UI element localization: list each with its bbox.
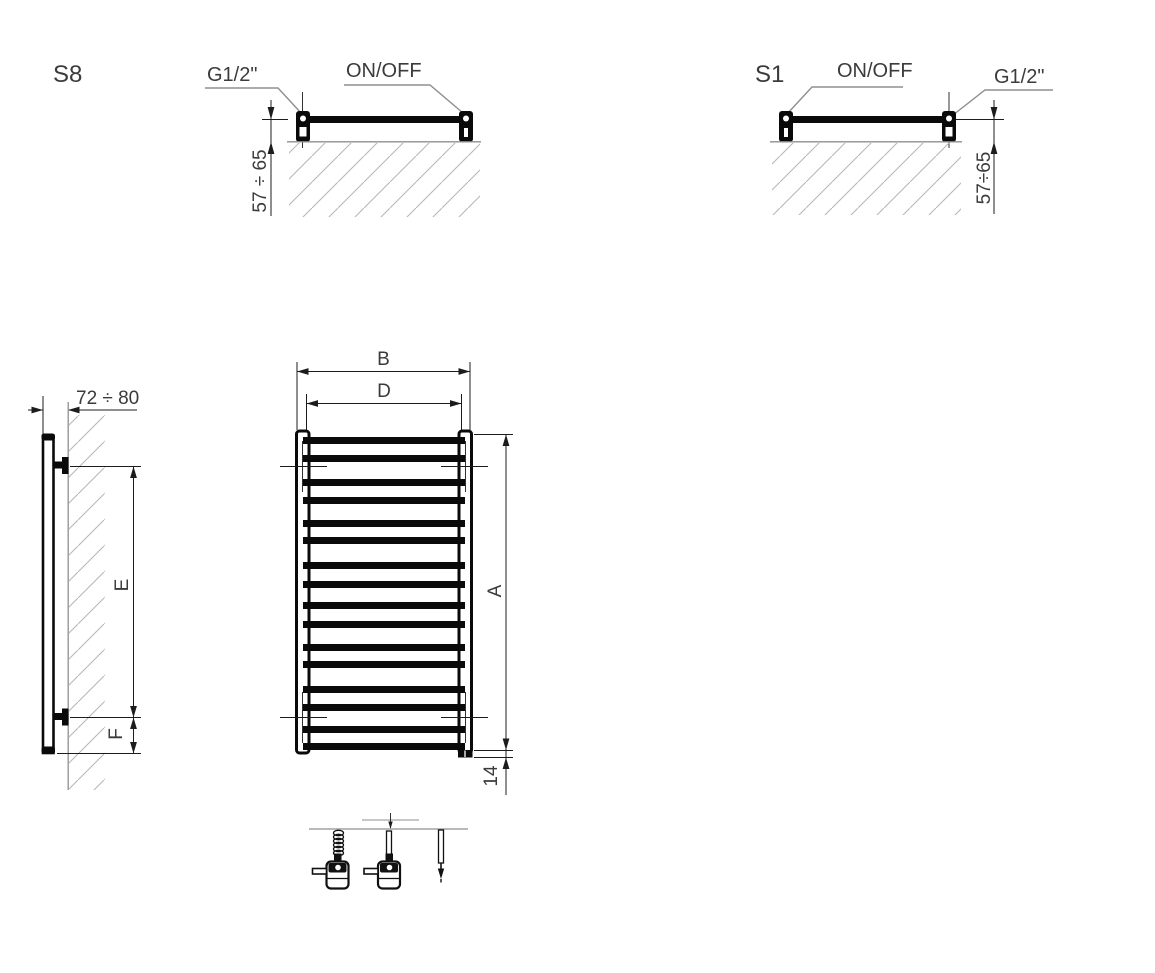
s8-switch-label: ON/OFF <box>346 60 422 82</box>
s8-wall-bracket-right <box>459 111 473 142</box>
s8-view-label: S8 <box>53 61 82 88</box>
front-dim-a-text: A <box>485 584 506 597</box>
front-dim-a: A <box>474 435 513 796</box>
s1-wall-hatch <box>772 143 961 215</box>
s8-switch-leader: ON/OFF <box>344 60 463 113</box>
front-dim-b-text: B <box>377 349 390 370</box>
s1-radiator-tube <box>791 116 943 123</box>
power-cable-options <box>309 813 468 889</box>
s1-thread-label: G1/2" <box>994 66 1044 88</box>
s1-wall-bracket-right <box>942 111 956 142</box>
front-rungs <box>303 437 465 750</box>
side-view: 72 ÷ 80 <box>28 388 141 790</box>
side-mounting-bracket-bottom <box>53 709 69 726</box>
s1-wall-distance-text: 57÷65 <box>974 152 995 205</box>
side-depth-text: 72 ÷ 80 <box>76 388 139 409</box>
s8-radiator-tube <box>305 116 462 123</box>
side-wall-hatch <box>69 415 105 790</box>
s8-wall-bracket-left <box>296 111 310 142</box>
s8-thread-leader: G1/2" <box>205 64 302 114</box>
s8-dim-wall-distance: 57 ÷ 65 <box>250 100 288 216</box>
s8-thread-label: G1/2" <box>207 64 257 86</box>
front-dim-14-text: 14 <box>481 765 502 787</box>
s1-wall-bracket-left <box>779 111 793 142</box>
front-dim-d: D <box>307 381 462 430</box>
side-dim-f-text: F <box>106 728 127 740</box>
s1-view-label: S1 <box>755 61 784 88</box>
s8-wall-hatch <box>289 143 480 217</box>
front-bottom-outlet <box>458 750 473 758</box>
front-dim-d-text: D <box>377 381 391 402</box>
s1-switch-label: ON/OFF <box>837 60 913 82</box>
s1-thread-leader: G1/2" <box>953 66 1053 115</box>
side-mounting-bracket-top <box>53 457 69 474</box>
side-dim-e-text: E <box>112 579 133 592</box>
s8-wall-distance-text: 57 ÷ 65 <box>250 149 271 212</box>
straight-cable-plug <box>364 831 400 889</box>
side-radiator-profile <box>42 434 56 755</box>
s1-top-view: S1 ON/OFF G1/2" 57÷65 <box>755 60 1053 215</box>
bare-wire-end <box>438 830 444 883</box>
coiled-cable-plug <box>313 830 349 888</box>
front-mounting-centerlines <box>280 441 488 743</box>
front-view: B D <box>280 349 513 795</box>
cable-center-marker <box>362 813 419 829</box>
s1-dim-wall-distance: 57÷65 <box>956 100 1004 214</box>
s8-top-view: S8 G1/2" ON/OFF <box>53 60 481 217</box>
s1-switch-leader: ON/OFF <box>787 60 913 114</box>
drawing-page: S8 G1/2" ON/OFF <box>0 0 1155 973</box>
radiator-technical-drawing: S8 G1/2" ON/OFF <box>0 0 1155 973</box>
front-dim-14: 14 <box>474 751 513 787</box>
